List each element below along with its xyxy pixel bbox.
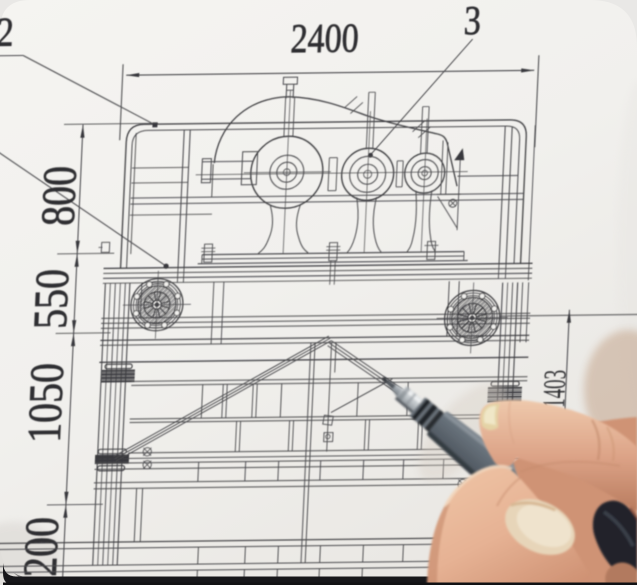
svg-text:800: 800: [32, 166, 86, 227]
svg-text:1050: 1050: [19, 363, 74, 444]
svg-text:1200: 1200: [14, 517, 69, 585]
svg-text:550: 550: [25, 269, 79, 330]
svg-text:2: 2: [0, 11, 15, 56]
svg-text:3: 3: [463, 0, 482, 44]
svg-text:2400: 2400: [290, 17, 360, 62]
svg-text:1403: 1403: [535, 370, 573, 408]
